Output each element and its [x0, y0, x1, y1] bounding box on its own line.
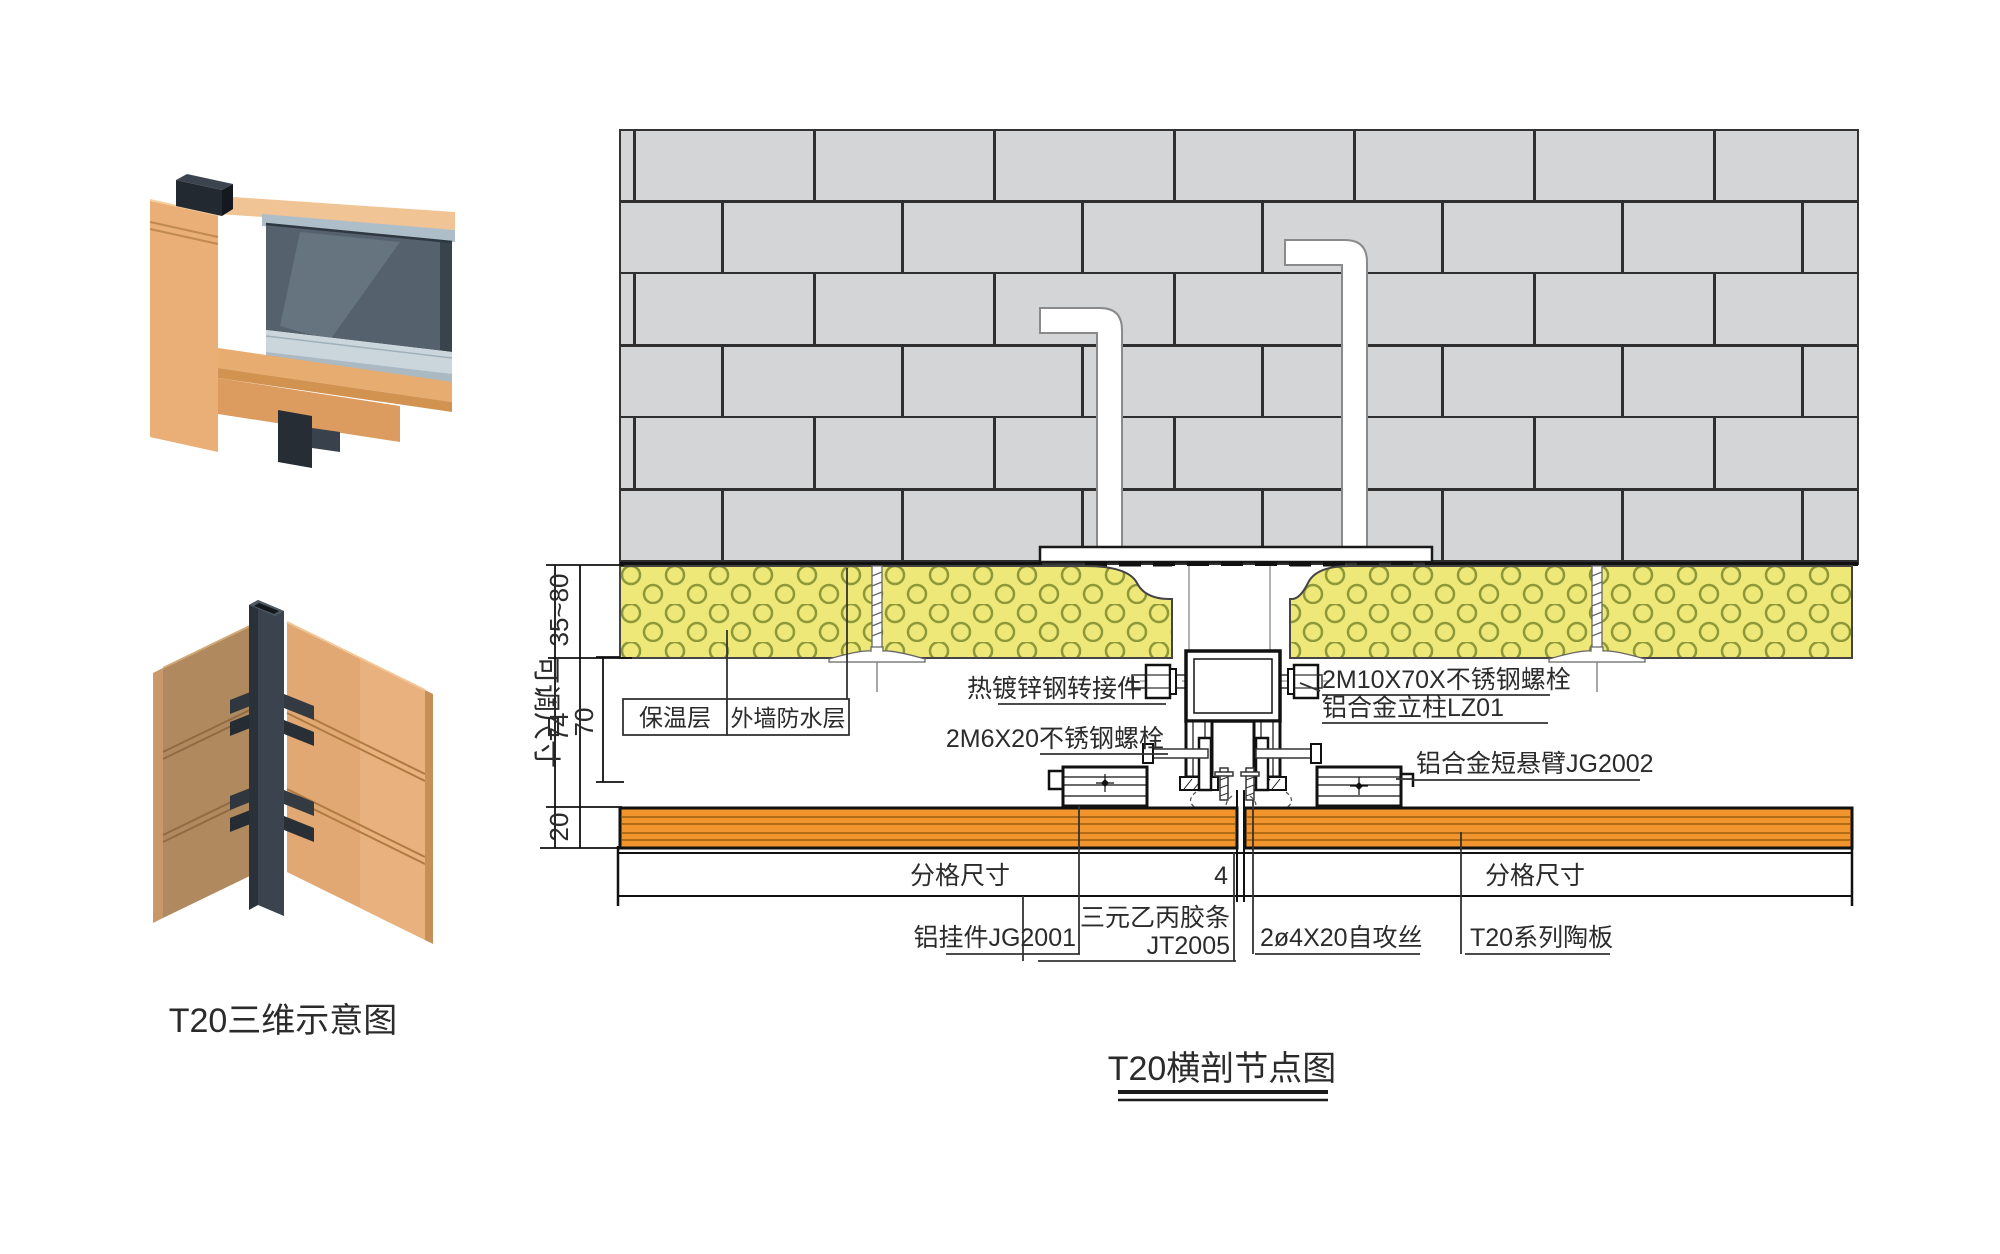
masonry-wall — [620, 130, 1858, 564]
label-bolt-m10: 2M10X70X不锈钢螺栓 — [1322, 666, 1571, 694]
section-title-underline — [1118, 1092, 1328, 1100]
module-dim-left: 分格尺寸 — [910, 862, 1010, 890]
hanger-vertical-plates — [1199, 738, 1268, 790]
label-adapter: 热镀锌钢转接件 — [967, 675, 1142, 703]
steel-adapter-plate — [1040, 547, 1432, 562]
terracotta-panel-right — [1245, 808, 1852, 848]
label-insulation: 保温层 — [639, 705, 711, 732]
gap-dim: 4 — [1214, 862, 1228, 890]
t20-detail-drawing: 分格尺寸 4 分格尺寸 可调尺寸 35~80 74 70 20 保温层 外墙防水… — [0, 0, 2000, 1254]
top-3d-illustration — [150, 174, 455, 468]
label-bolt-m6: 2M6X20不锈钢螺栓 — [946, 725, 1164, 753]
m6-bolts — [1143, 744, 1321, 763]
drawing-sheet: 分格尺寸 4 分格尺寸 可调尺寸 35~80 74 70 20 保温层 外墙防水… — [0, 0, 2000, 1254]
hanger-clip-right — [1317, 767, 1413, 806]
module-dim-right: 分格尺寸 — [1485, 862, 1585, 890]
label-screw: 2ø4X20自攻丝 — [1260, 924, 1423, 952]
label-waterproof: 外墙防水层 — [731, 705, 846, 731]
label-hanger: 铝挂件JG2001 — [913, 924, 1076, 952]
terracotta-panel-left — [620, 808, 1237, 848]
left-3d-title: T20三维示意图 — [169, 1002, 398, 1040]
label-panel: T20系列陶板 — [1470, 924, 1613, 952]
label-mullion: 铝合金立柱LZ01 — [1322, 694, 1504, 722]
bottom-3d-illustration — [153, 600, 433, 944]
dim-70: 70 — [569, 708, 599, 737]
module-dimension-strip — [618, 846, 1852, 906]
hanger-clip-left — [1049, 767, 1147, 806]
label-epdm-1: 三元乙丙胶条 — [1080, 904, 1230, 932]
insulation-left-block — [620, 566, 1172, 658]
terracotta-panels — [620, 790, 1852, 902]
dim-adjustable: 可调尺寸 — [531, 656, 562, 768]
label-epdm-2: JT2005 — [1147, 932, 1230, 960]
bracket-channel — [1172, 566, 1290, 658]
section-title: T20横剖节点图 — [1108, 1050, 1337, 1088]
insulation-right-block — [1290, 566, 1852, 658]
label-short-arm: 铝合金短悬臂JG2002 — [1416, 750, 1654, 778]
aluminum-mullion — [1180, 651, 1286, 790]
dim-35-80: 35~80 — [544, 573, 574, 646]
dim-20: 20 — [544, 813, 574, 842]
